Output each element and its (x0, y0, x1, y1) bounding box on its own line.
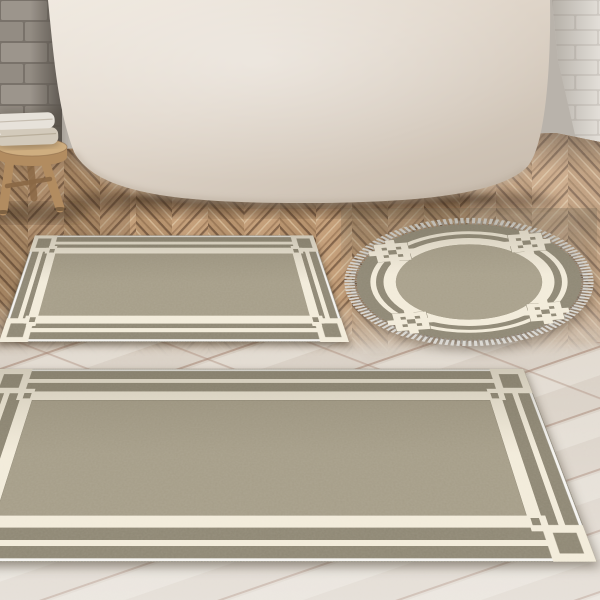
small-mat-body (0, 235, 349, 342)
large-mat-body (0, 369, 597, 562)
bath-mat-round (341, 208, 597, 356)
wall-right (552, 0, 600, 147)
bathroom-scene (0, 0, 600, 600)
bath-mat-rectangular-large (0, 369, 597, 562)
towels (0, 112, 61, 150)
bathtub (48, 0, 550, 203)
bath-mat-rectangular-small (0, 235, 349, 342)
